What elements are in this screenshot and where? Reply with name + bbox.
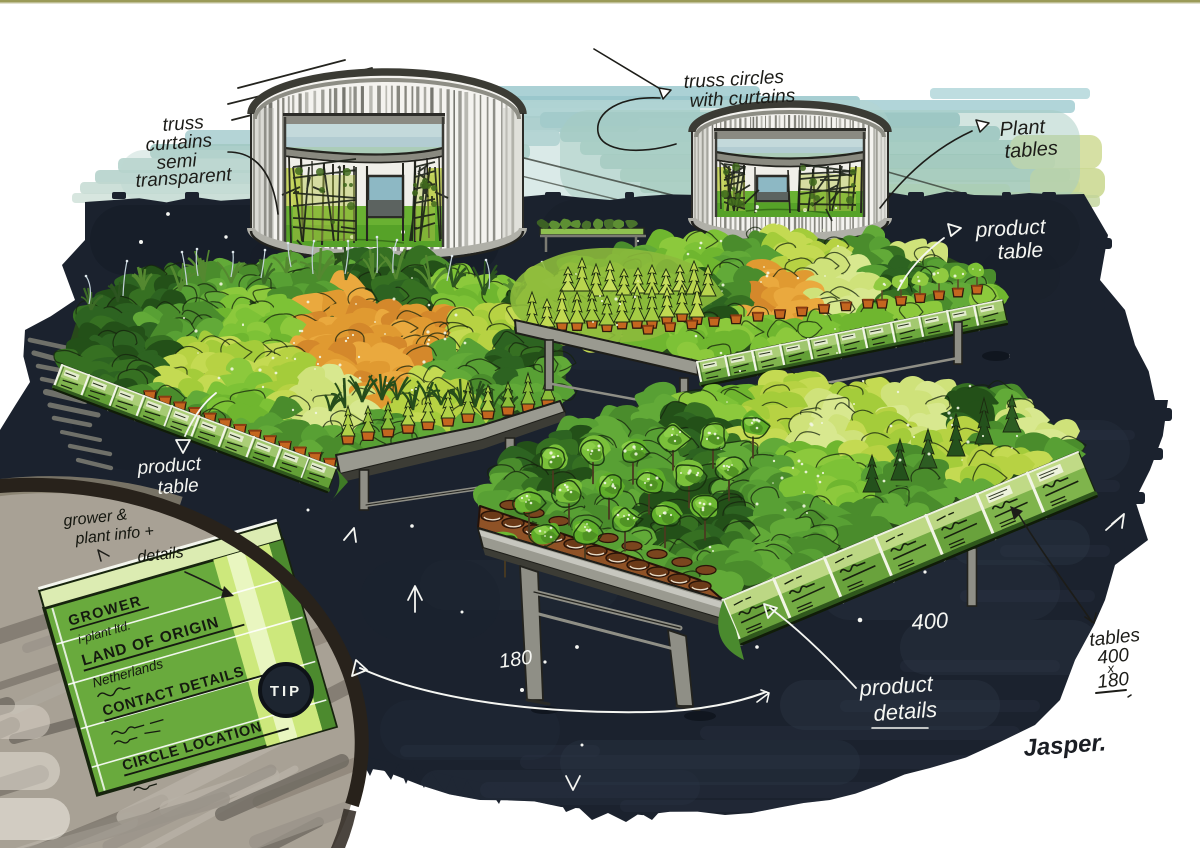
svg-text:tables: tables — [1004, 137, 1059, 163]
svg-text:table: table — [157, 475, 200, 499]
svg-text:400: 400 — [911, 607, 950, 635]
svg-text:TIP: TIP — [270, 683, 302, 700]
svg-text:Jasper.: Jasper. — [1023, 729, 1107, 762]
svg-text:Plant: Plant — [999, 116, 1047, 141]
svg-text:table: table — [997, 239, 1044, 264]
svg-text:details: details — [873, 697, 938, 726]
svg-text:product: product — [858, 671, 935, 701]
svg-text:180: 180 — [498, 647, 534, 673]
